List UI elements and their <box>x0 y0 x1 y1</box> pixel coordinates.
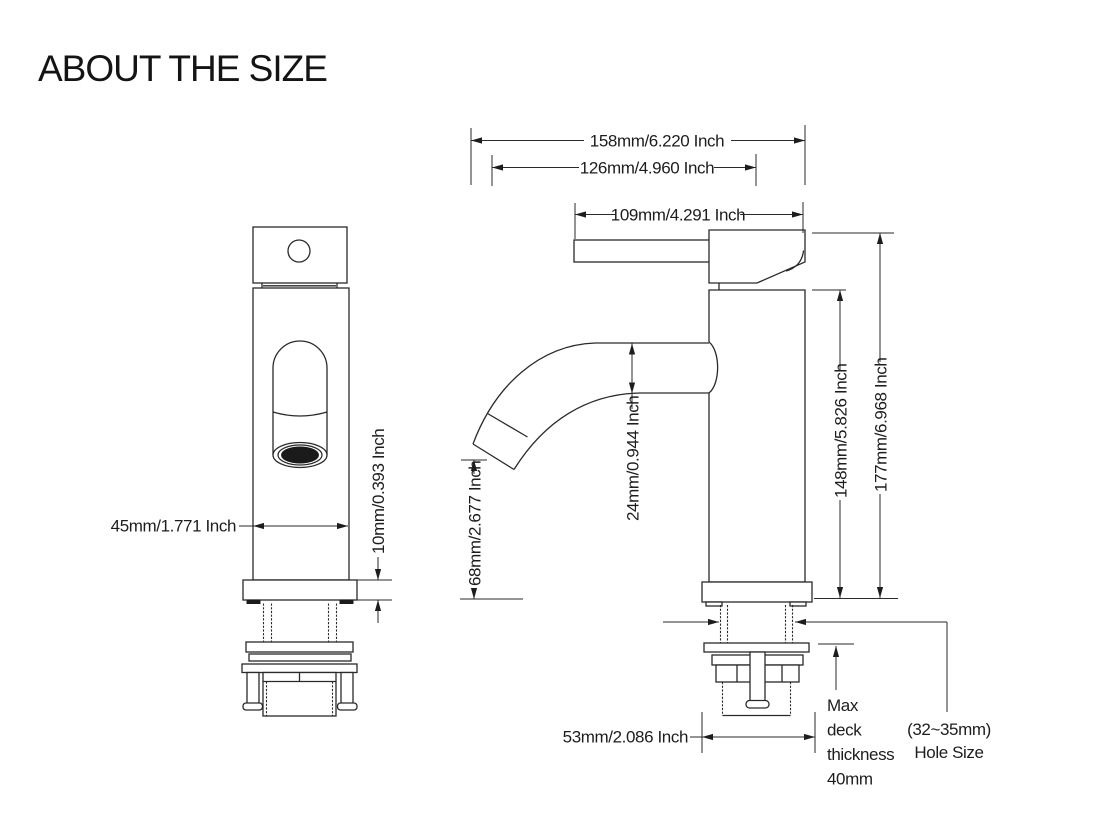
side-base-flange <box>702 582 812 602</box>
note-deck-line-3: thickness <box>827 745 894 764</box>
front-aerator <box>282 447 319 463</box>
front-leg-right-foot <box>338 703 358 710</box>
note-hole-size-line-1: (32~35mm) <box>907 720 991 739</box>
front-leg-right <box>341 673 353 704</box>
front-leg-left-foot <box>243 703 263 710</box>
side-flange-foot-left <box>706 602 722 606</box>
note-deck-line-1: Max <box>827 696 859 715</box>
front-washer-plate <box>246 642 353 652</box>
side-washer-plate <box>704 643 809 652</box>
background <box>0 0 1111 834</box>
dim-overall-height-label: 177mm/6.968 Inch <box>872 358 891 492</box>
dim-handle-length-label: 109mm/4.291 Inch <box>611 206 745 225</box>
dim-overall-width-label: 158mm/6.220 Inch <box>590 132 724 151</box>
note-deck-line-2: deck <box>827 721 862 740</box>
side-stud-foot <box>746 701 769 709</box>
front-handle-block <box>253 227 347 283</box>
side-body <box>709 290 805 582</box>
note-hole-size-line-2: Hole Size <box>914 743 983 762</box>
drawing-canvas: ABOUT THE SIZE <box>0 0 1111 834</box>
dim-body-width-label: 45mm/1.771 Inch <box>111 517 236 536</box>
dim-body-height-label: 148mm/5.826 Inch <box>832 364 851 498</box>
page-title: ABOUT THE SIZE <box>38 48 327 89</box>
front-cross-bar <box>242 664 357 673</box>
front-flange-foot-right <box>340 600 353 604</box>
front-flange-foot-left <box>247 600 260 604</box>
front-gasket <box>249 654 351 661</box>
dim-spout-clearance-label: 68mm/2.677 Inch <box>466 461 485 586</box>
note-deck-line-4: 40mm <box>827 770 873 789</box>
front-leg-left <box>247 673 259 704</box>
front-body <box>253 288 349 580</box>
front-base-flange <box>243 580 357 600</box>
dim-base-width-label: 53mm/2.086 Inch <box>563 728 688 747</box>
side-lever-handle <box>574 240 711 262</box>
dim-spout-reach-label: 126mm/4.960 Inch <box>580 159 714 178</box>
dim-spout-diameter-label: 24mm/0.944 Inch <box>624 396 643 521</box>
side-stud-bolt <box>750 652 765 701</box>
size-diagram-page: ABOUT THE SIZE <box>0 0 1111 834</box>
dim-base-height-label: 10mm/0.393 Inch <box>369 429 388 554</box>
front-view <box>242 227 357 716</box>
